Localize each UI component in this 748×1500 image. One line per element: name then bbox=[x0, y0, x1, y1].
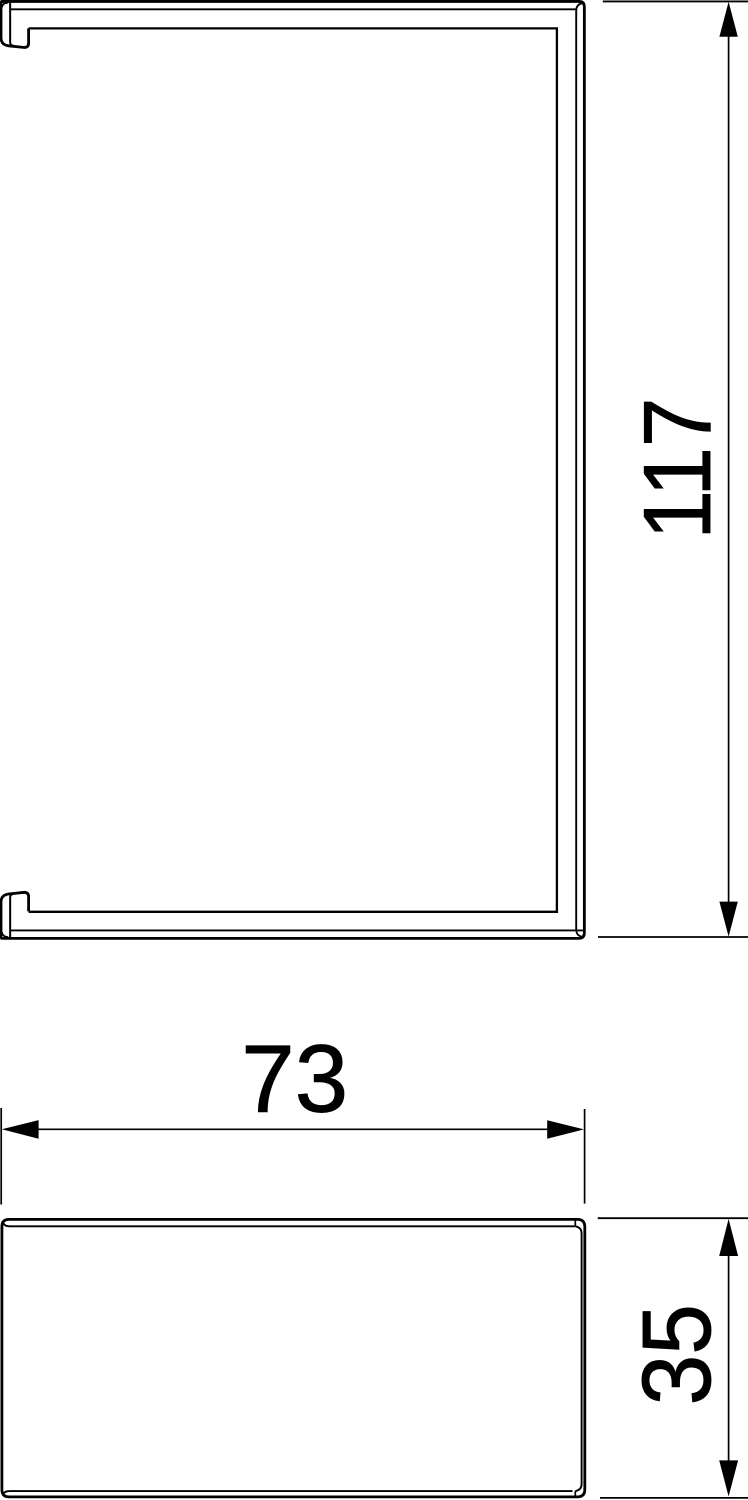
svg-text:73: 73 bbox=[241, 1025, 348, 1132]
svg-text:117: 117 bbox=[624, 398, 731, 540]
svg-text:35: 35 bbox=[622, 1304, 731, 1405]
